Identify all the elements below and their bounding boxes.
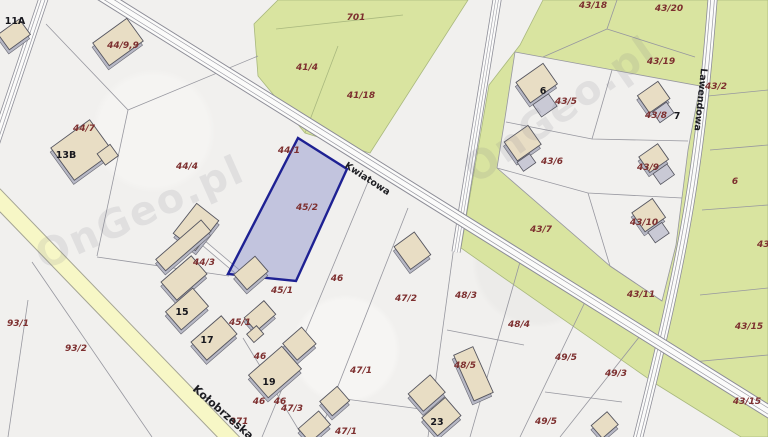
parcel-label: 43/11 — [626, 290, 655, 300]
parcel-label: 44/3 — [192, 258, 215, 268]
parcel-label: 47/3 — [280, 404, 303, 414]
parcel-label: 41/4 — [295, 63, 318, 73]
building-label: 15 — [175, 307, 188, 318]
parcel-label-clipped: 43/ — [756, 240, 768, 250]
parcel-label: 44/9,9 — [106, 41, 139, 51]
parcel-label: 49/5 — [534, 417, 557, 427]
parcel-label: 93/2 — [65, 344, 87, 354]
parcel-label: 44/1 — [277, 146, 300, 156]
parcel-label: 44/4 — [175, 162, 198, 172]
parcel-label: 49/5 — [554, 353, 577, 363]
parcel-label: 43/8 — [644, 111, 667, 121]
parcel-label: 43/5 — [554, 97, 577, 107]
parcel-label: 49/3 — [604, 369, 627, 379]
cadastral-map[interactable]: OnGeo.pl OnGeo.pl 44/9,9 44/7 44/4 44/1 … — [0, 0, 768, 437]
parcel-label: 47/1 — [334, 427, 357, 437]
parcel-label: 43/19 — [646, 57, 675, 67]
parcel-label: 43/15 — [734, 322, 763, 332]
building-label: 11A — [5, 16, 26, 27]
parcel-label: 48/4 — [507, 320, 530, 330]
parcel-label: 46 — [253, 352, 267, 362]
parcel-label: 48/3 — [454, 291, 477, 301]
building-label: 17 — [200, 335, 213, 346]
parcel-label: 44/7 — [72, 124, 96, 134]
parcel-label: 47/2 — [394, 294, 417, 304]
parcel-label: 43/20 — [654, 4, 683, 14]
parcel-label: 43/10 — [629, 218, 658, 228]
parcel-label: 43/7 — [529, 225, 553, 235]
parcel-label: 43/9 — [636, 163, 659, 173]
highlighted-parcel-45-2[interactable] — [228, 138, 347, 281]
parcel-label: 43/15 — [732, 397, 761, 407]
building-label: 23 — [430, 417, 443, 428]
building-label: 13B — [56, 150, 76, 161]
parcel-label: 47/1 — [349, 366, 372, 376]
parcel-label: 43/18 — [578, 1, 607, 11]
parcel-label: 45/1 — [270, 286, 293, 296]
parcel-label: 41/18 — [346, 91, 375, 101]
building-label: 6 — [540, 86, 547, 97]
parcel-label: 48/5 — [453, 361, 476, 371]
parcel-label: 6 — [732, 177, 738, 187]
building-label: 7 — [674, 111, 681, 122]
parcel-label: 45/1 — [228, 318, 251, 328]
parcel-label: 45/2 — [295, 203, 318, 213]
parcel-label: 701 — [347, 13, 366, 23]
parcel-label: 46 — [252, 397, 266, 407]
parcel-label: 46 — [330, 274, 344, 284]
parcel-label: 43/6 — [540, 157, 563, 167]
building-label: 19 — [262, 377, 275, 388]
map-canvas[interactable]: OnGeo.pl OnGeo.pl 44/9,9 44/7 44/4 44/1 … — [0, 0, 768, 437]
parcel-label: 93/1 — [7, 319, 29, 329]
